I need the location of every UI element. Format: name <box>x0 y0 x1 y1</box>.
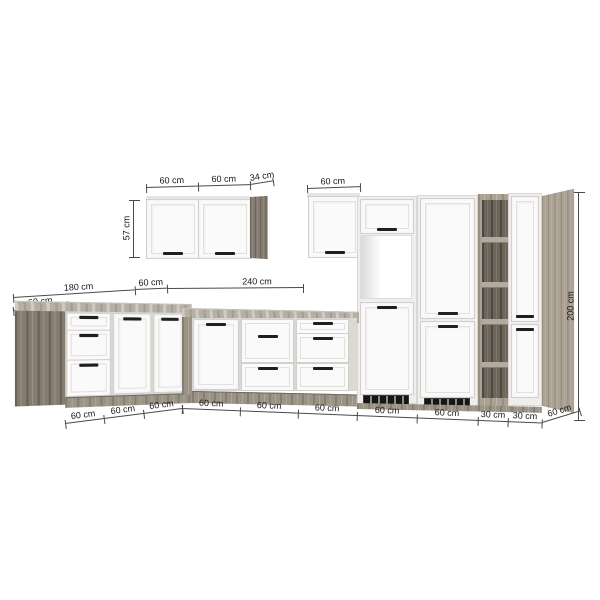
cabinet-handle <box>313 367 333 370</box>
dimension-label: 60 cm <box>375 406 400 416</box>
drawer-front <box>66 312 111 330</box>
dimension-label: 34 cm <box>249 170 275 183</box>
drawer-front <box>296 333 349 363</box>
dimension-line: 60 cm 60 cm <box>146 184 250 188</box>
dimension-line: 34 cm <box>250 180 273 185</box>
drawer-front <box>296 363 349 391</box>
corner-filler <box>182 317 192 395</box>
dimension-line: 60 cm <box>307 186 360 189</box>
cabinet-handle <box>377 228 397 231</box>
shelf-board <box>482 237 508 243</box>
left-end-panel <box>15 311 65 407</box>
cabinet-handle <box>79 363 98 366</box>
cabinet-handle <box>438 325 458 328</box>
cabinet-handle <box>79 316 98 319</box>
wall-cabinet-door <box>308 196 361 258</box>
dimension-label: 60 cm <box>211 174 236 184</box>
dimension-label: 60 cm <box>159 176 184 186</box>
cabinet-handle <box>516 315 534 318</box>
cabinet-handle <box>313 337 333 340</box>
dimension-label: 60 cm <box>315 403 340 413</box>
narrow-top-door <box>511 196 539 322</box>
two-front-base-unit <box>240 318 295 391</box>
dimension-label: 30 cm <box>513 411 538 421</box>
wall-cabinet-door <box>198 199 252 259</box>
dimension-label: 60 cm <box>138 278 163 288</box>
oven-housing-column <box>357 196 417 404</box>
cabinet-handle <box>258 335 278 338</box>
cabinet-handle <box>516 328 534 331</box>
fridge-lower-door <box>420 321 475 398</box>
drawer-front <box>66 359 111 397</box>
drawer-front <box>241 319 294 363</box>
fridge-top-door <box>420 198 475 319</box>
dimension-label: 60 cm <box>70 409 95 421</box>
cabinet-handle <box>313 322 333 325</box>
cabinet-seam <box>350 318 357 391</box>
narrow-tall-cabinet <box>508 193 542 406</box>
cabinet-handle <box>325 251 345 254</box>
shelf-board <box>482 282 508 288</box>
narrow-lower-door <box>511 324 539 398</box>
dimension-label: 60 cm <box>110 404 135 416</box>
dimension-label: 60 cm <box>257 401 282 411</box>
dimension-label: 60 cm <box>199 399 224 409</box>
kitchen-elevation-diagram: 60 cm 60 cm 34 cm 57 cm 60 cm <box>0 0 600 600</box>
dimension-line: 60 cm 60 cm 60 cm <box>65 408 182 424</box>
wall-cabinet-door <box>146 199 200 259</box>
base-door <box>113 313 151 395</box>
dimension-label: 60 cm <box>149 399 174 411</box>
base-door <box>193 319 239 390</box>
drawer-base-unit <box>65 311 112 397</box>
door-base-unit <box>112 312 152 396</box>
dimension-line: 60 cm <box>135 288 167 290</box>
dimension-label: 60 cm <box>435 408 460 418</box>
drawer-front <box>241 363 294 391</box>
shelf-board <box>482 319 508 325</box>
oven-recess <box>360 235 412 299</box>
wall-cabinet-side-panel <box>250 196 268 259</box>
dimension-line-vertical <box>578 192 579 420</box>
oven-top-door <box>360 199 414 234</box>
dimension-line: 60 cm 60 cm 60 cm 60 cm 60 cm 30 cm 30 c… <box>182 408 542 423</box>
cabinet-handle <box>258 367 278 370</box>
drawer-front <box>66 330 111 361</box>
oven-lower-door <box>360 302 414 395</box>
cabinet-handle <box>123 317 141 320</box>
drawer-base-unit <box>295 318 350 391</box>
dimension-label: 60 cm <box>320 177 345 187</box>
cabinet-handle <box>438 312 458 315</box>
cabinet-handle <box>377 306 397 309</box>
dimension-label: 30 cm <box>481 410 506 420</box>
dimension-label: 240 cm <box>242 277 272 286</box>
cabinet-handle <box>215 252 235 255</box>
door-base-unit <box>192 318 240 391</box>
open-shelf-unit <box>478 194 508 408</box>
dimension-label: 180 cm <box>64 282 94 293</box>
shelf-interior <box>482 200 508 398</box>
dimension-label: 200 cm <box>567 291 576 321</box>
dimension-line: 240 cm <box>167 287 303 289</box>
cabinet-handle <box>163 252 183 255</box>
drawer-front <box>296 319 349 334</box>
dimension-line-vertical <box>133 200 134 257</box>
cabinet-handle <box>206 323 226 326</box>
dimension-label: 57 cm <box>123 216 132 241</box>
cabinet-handle <box>79 334 98 337</box>
shelf-board <box>482 362 508 368</box>
dimension-line: 60 cm <box>542 411 580 423</box>
cabinet-handle <box>161 318 178 321</box>
fridge-housing-column <box>417 195 478 406</box>
